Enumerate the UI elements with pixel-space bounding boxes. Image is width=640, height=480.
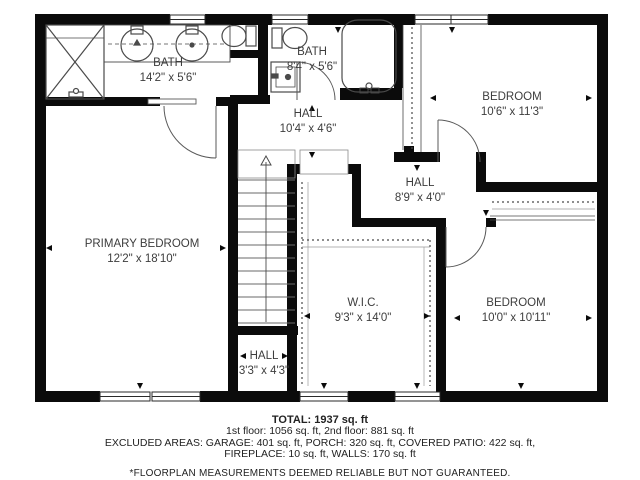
- closet-rod: [490, 202, 595, 220]
- window: [100, 392, 150, 401]
- door-swing: [164, 106, 216, 158]
- excluded-areas-text-2: FIREPLACE: 10 sq. ft, WALLS: 170 sq. ft: [0, 449, 640, 461]
- shower: [46, 25, 104, 99]
- disclaimer-text: *FLOORPLAN MEASUREMENTS DEEMED RELIABLE …: [0, 468, 640, 479]
- bathtub: [342, 20, 396, 93]
- area-summary: TOTAL: 1937 sq. ft 1st floor: 1056 sq. f…: [0, 414, 640, 479]
- window: [152, 392, 200, 401]
- closet-rod: [302, 182, 430, 386]
- toilet: [222, 26, 256, 47]
- window: [300, 392, 348, 401]
- window: [272, 15, 308, 24]
- room-label-bath-2: BATH 8'4" x 5'6": [287, 45, 337, 75]
- door-swing: [446, 227, 486, 267]
- room-label-hall-lower: HALL 3'3" x 4'3": [239, 349, 289, 379]
- window: [415, 15, 488, 24]
- window: [395, 392, 440, 401]
- cased-opening: [300, 150, 348, 174]
- room-label-wic: W.I.C. 9'3" x 14'0": [335, 296, 392, 326]
- window: [170, 15, 205, 24]
- door-swing: [438, 120, 480, 162]
- room-label-bedroom-top-right: BEDROOM 10'6" x 11'3": [481, 90, 543, 120]
- room-label-hall-mid: HALL 8'9" x 4'0": [395, 176, 445, 206]
- dimension-markers: [46, 27, 592, 389]
- room-label-bath-1: BATH 14'2" x 5'6": [140, 56, 197, 86]
- pocket-door: [148, 99, 196, 104]
- staircase: [238, 150, 295, 323]
- room-label-primary-bedroom: PRIMARY BEDROOM 12'2" x 18'10": [85, 237, 200, 267]
- room-label-hall-upper: HALL 10'4" x 4'6": [280, 107, 337, 137]
- floor-areas-text: 1st floor: 1056 sq. ft, 2nd floor: 881 s…: [0, 426, 640, 438]
- floorplan-page: BATH 14'2" x 5'6" BATH 8'4" x 5'6" HALL …: [0, 0, 640, 480]
- closet-rod: [403, 25, 421, 152]
- room-label-bedroom-bottom-right: BEDROOM 10'0" x 10'11": [482, 296, 551, 326]
